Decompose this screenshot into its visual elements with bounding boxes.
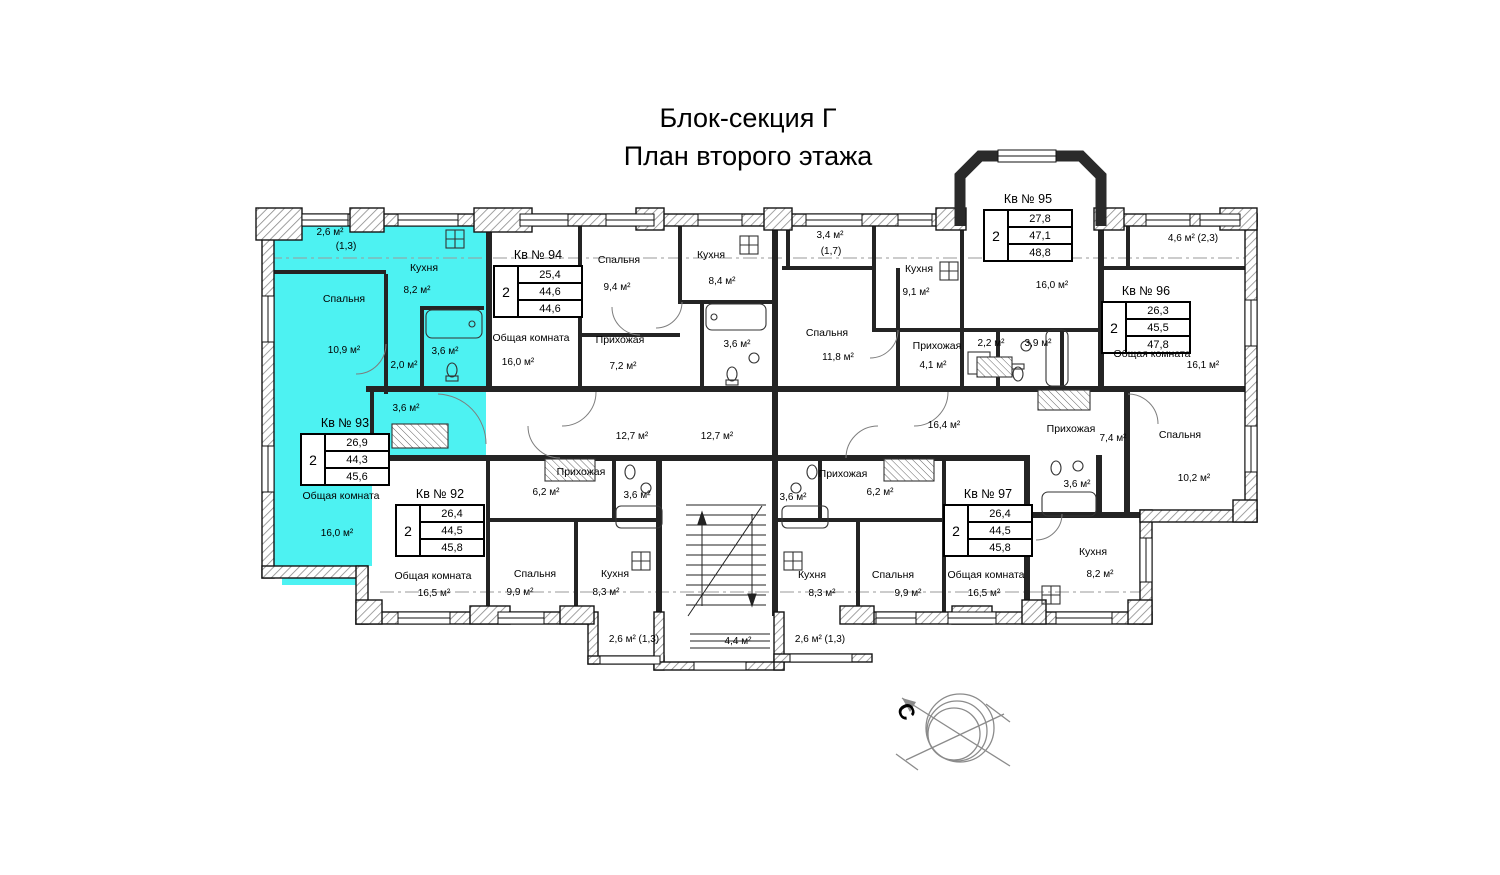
label-kv92-bedroom-area: 9,9 м² <box>507 588 534 598</box>
living-area: 26,9 <box>326 435 388 452</box>
staircase <box>686 505 770 648</box>
living-area: 25,4 <box>519 267 581 284</box>
label-kv93-balcony-area: 2,6 м² <box>317 228 344 238</box>
label-kv94-bedroom-area: 9,4 м² <box>604 283 631 293</box>
apartment-number: Кв № 92 <box>392 487 488 501</box>
label-kv94-hall: Прихожая <box>596 335 645 346</box>
label-kv92-hall: Прихожая <box>557 467 606 478</box>
apartment-number: Кв № 94 <box>490 248 586 262</box>
label-balcony-bottom-left: 2,6 м² (1,3) <box>609 635 659 645</box>
north-letter: С <box>892 699 922 725</box>
label-kv96-living-area: 16,1 м² <box>1187 361 1219 371</box>
label-kv96-hall-area: 7,4 м² <box>1100 434 1127 444</box>
label-kv97-bath-area: 3,6 м² <box>780 493 807 503</box>
apartment-card-kv93: Кв № 93 2 26,9 44,3 45,6 <box>297 416 393 486</box>
page-title-line1: Блок-секция Г <box>624 100 873 138</box>
label-kv97-hall: Прихожая <box>819 469 868 480</box>
label-kv96-living: Общая комната <box>1114 349 1191 360</box>
label-kv96-bedroom-area: 10,2 м² <box>1178 474 1210 484</box>
label-corridor-left-area: 12,7 м² <box>616 432 648 442</box>
page-title: Блок-секция Г План второго этажа <box>624 100 873 176</box>
label-kv95-bedroom-area: 11,8 м² <box>822 353 854 363</box>
label-kv96-kitchen: Кухня <box>1079 547 1107 558</box>
living-area: 27,8 <box>1009 211 1071 228</box>
north-compass-icon: С <box>892 694 1010 770</box>
page-title-line2: План второго этажа <box>624 138 873 176</box>
label-kv95-living-area: 16,0 м² <box>1036 281 1068 291</box>
living-area: 26,4 <box>421 506 483 523</box>
label-kv96-kitchen-area: 8,2 м² <box>1087 570 1114 580</box>
rooms-count: 2 <box>302 435 326 484</box>
living-area: 26,3 <box>1127 303 1189 320</box>
label-kv95-kitchen-area: 9,1 м² <box>903 288 930 298</box>
label-kv97-bedroom-area: 9,9 м² <box>895 589 922 599</box>
label-kv94-bath-area: 3,6 м² <box>724 340 751 350</box>
rooms-count: 2 <box>1103 303 1127 352</box>
label-kv92-living: Общая комната <box>395 571 472 582</box>
label-kv92-kitchen: Кухня <box>601 569 629 580</box>
label-kv95-balcony-coef: (1,7) <box>821 247 842 257</box>
apartment-number: Кв № 96 <box>1098 284 1194 298</box>
label-kv95-bath-area: 3,9 м² <box>1025 339 1052 349</box>
label-kv93-bedroom-area: 10,9 м² <box>328 346 360 356</box>
apartment-card-kv95: Кв № 95 2 27,8 47,1 48,8 <box>980 192 1076 262</box>
label-kv97-kitchen-area: 8,3 м² <box>809 589 836 599</box>
living-area: 26,4 <box>969 506 1031 523</box>
label-kv93-balcony-coef: (1,3) <box>336 242 357 252</box>
label-kv96-bedroom: Спальня <box>1159 430 1201 441</box>
label-kv93-hall-area: 2,0 м² <box>391 361 418 371</box>
label-kv97-bedroom: Спальня <box>872 570 914 581</box>
label-kv93-bath-area: 3,6 м² <box>432 347 459 357</box>
total-area-with-balcony: 45,8 <box>969 540 1031 555</box>
total-area: 44,6 <box>519 284 581 301</box>
label-kv92-hall-area: 6,2 м² <box>533 488 560 498</box>
label-kv95-hall-area: 4,1 м² <box>920 361 947 371</box>
label-corridor-mid-area: 12,7 м² <box>701 432 733 442</box>
label-kv93-living-area: 16,0 м² <box>321 529 353 539</box>
label-balcony-bottom-right: 2,6 м² (1,3) <box>795 635 845 645</box>
total-area-with-balcony: 48,8 <box>1009 245 1071 260</box>
label-kv94-kitchen-area: 8,4 м² <box>709 277 736 287</box>
label-kv93-bedroom: Спальня <box>323 294 365 305</box>
total-area: 44,5 <box>969 523 1031 540</box>
label-kv97-living: Общая комната <box>948 570 1025 581</box>
label-kv93-living: Общая комната <box>303 491 380 502</box>
rooms-count: 2 <box>495 267 519 316</box>
label-kv92-bath-area: 3,6 м² <box>624 491 651 501</box>
label-kv97-hall-area: 6,2 м² <box>867 488 894 498</box>
rooms-count: 2 <box>945 506 969 555</box>
label-kv94-living-area: 16,0 м² <box>502 358 534 368</box>
rooms-count: 2 <box>397 506 421 555</box>
label-kv92-bedroom: Спальня <box>514 569 556 580</box>
label-corridor-right-area: 16,4 м² <box>928 421 960 431</box>
label-kv96-balcony-area: 4,6 м² (2,3) <box>1168 234 1218 244</box>
label-kv95-wc-area: 2,2 м² <box>978 339 1005 349</box>
total-area: 45,5 <box>1127 320 1189 337</box>
label-kv92-kitchen-area: 8,3 м² <box>593 588 620 598</box>
label-kv94-bedroom: Спальня <box>598 255 640 266</box>
apartment-number: Кв № 93 <box>297 416 393 430</box>
label-kv94-kitchen: Кухня <box>697 250 725 261</box>
total-area-with-balcony: 45,8 <box>421 540 483 555</box>
apartment-number: Кв № 95 <box>980 192 1076 206</box>
apartment-card-kv97: Кв № 97 2 26,4 44,5 45,8 <box>940 487 1036 557</box>
label-kv95-hall: Прихожая <box>913 341 962 352</box>
apartment-number: Кв № 97 <box>940 487 1036 501</box>
total-area: 47,1 <box>1009 228 1071 245</box>
total-area: 44,5 <box>421 523 483 540</box>
label-kv93-kitchen-area: 8,2 м² <box>404 286 431 296</box>
label-kv94-hall-area: 7,2 м² <box>610 362 637 372</box>
total-area-with-balcony: 44,6 <box>519 301 581 316</box>
label-kv97-kitchen: Кухня <box>798 570 826 581</box>
rooms-count: 2 <box>985 211 1009 260</box>
total-area: 44,3 <box>326 452 388 469</box>
apartment-card-kv92: Кв № 92 2 26,4 44,5 45,8 <box>392 487 488 557</box>
label-kv97-living-area: 16,5 м² <box>968 589 1000 599</box>
label-kv96-hall: Прихожая <box>1047 424 1096 435</box>
label-kv93-kitchen: Кухня <box>410 263 438 274</box>
label-kv93-corridor-area: 3,6 м² <box>393 404 420 414</box>
apartment-card-kv96: Кв № 96 2 26,3 45,5 47,8 <box>1098 284 1194 354</box>
label-kv95-balcony-area: 3,4 м² <box>817 231 844 241</box>
apartment-card-kv94: Кв № 94 2 25,4 44,6 44,6 <box>490 248 586 318</box>
label-kv96-bath-area: 3,6 м² <box>1064 480 1091 490</box>
label-kv94-living: Общая комната <box>493 333 570 344</box>
label-kv95-bedroom: Спальня <box>806 328 848 339</box>
label-kv95-kitchen: Кухня <box>905 264 933 275</box>
label-stair-lobby-area: 4,4 м² <box>725 637 752 647</box>
total-area-with-balcony: 45,6 <box>326 469 388 484</box>
label-kv92-living-area: 16,5 м² <box>418 589 450 599</box>
